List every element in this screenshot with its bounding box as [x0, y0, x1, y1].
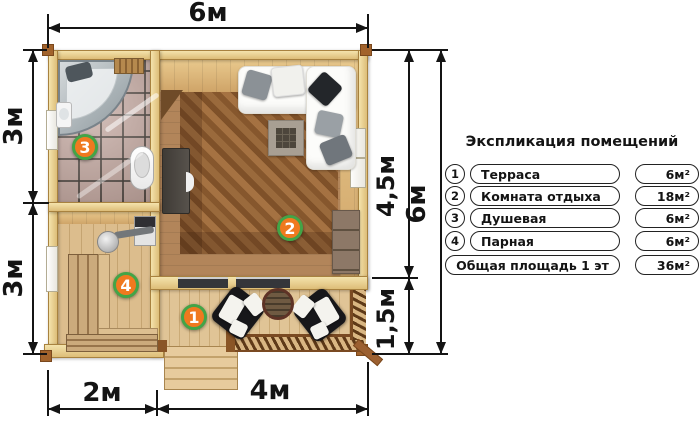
- step-post-left: [158, 340, 167, 352]
- dim-label-right-total: 6м: [404, 174, 430, 234]
- sofa-pillow: [271, 64, 306, 97]
- legend-room-name: Душевая: [470, 208, 620, 228]
- arrowhead: [28, 342, 38, 354]
- coffee-table-top: [276, 128, 296, 148]
- legend-room-name: Комната отдыха: [470, 186, 620, 206]
- terrace-railing-bottom: [230, 334, 364, 352]
- window-sauna: [46, 246, 58, 292]
- dim-label-bottom-right: 4м: [230, 378, 310, 404]
- legend-room-area: 6м²: [635, 208, 699, 228]
- arrowhead: [356, 23, 368, 33]
- corner-post-bottom-left: [40, 350, 52, 362]
- wall-shower-sauna: [48, 202, 160, 212]
- arrowhead: [48, 404, 60, 414]
- arrowhead: [436, 342, 446, 354]
- wall-shelf: [114, 58, 144, 74]
- room-badge-terrace: 1: [181, 304, 207, 330]
- terrace-door-threshold-left: [178, 277, 228, 288]
- legend-row-total: Общая площадь 1 эт 36м²: [445, 255, 699, 275]
- floor-plan-page: 1 2 3 4 6м 3м 3м 4,5м 1,5м 6м 2м 4м Эксп…: [0, 0, 700, 425]
- legend-total-label: Общая площадь 1 эт: [445, 255, 620, 275]
- dimension-line-right-outer: [440, 50, 442, 354]
- legend-room-area: 18м²: [635, 186, 699, 206]
- legend-room-name: Парная: [470, 231, 620, 251]
- terrace-steps: [164, 346, 238, 390]
- legend-room-number: 2: [445, 186, 465, 206]
- dim-label-right-lower: 1,5м: [373, 274, 399, 364]
- room-badge-lounge: 2: [277, 215, 303, 241]
- dim-label-right-upper: 4,5м: [373, 141, 399, 231]
- round-table: [262, 288, 294, 320]
- legend-title: Экспликация помещений: [445, 134, 699, 150]
- dimension-line-bottom: [48, 408, 368, 410]
- dim-label-top-width: 6м: [148, 0, 268, 26]
- legend-room-area: 6м²: [635, 164, 699, 184]
- parquet-shadow-bottom: [180, 232, 338, 254]
- terrace-door-threshold-right: [236, 277, 290, 288]
- dim-label-left-lower: 3м: [1, 248, 27, 308]
- arrowhead: [356, 404, 368, 414]
- arrowhead: [157, 404, 169, 414]
- sauna-bench-bottom: [66, 334, 158, 352]
- sauna-stove: [97, 231, 119, 253]
- sink-bowl: [59, 108, 69, 120]
- arrowhead: [436, 50, 446, 62]
- corner-post-top-right: [360, 44, 372, 56]
- arrowhead: [28, 203, 38, 215]
- legend-room-number: 1: [445, 164, 465, 184]
- sofa-pillow: [314, 110, 344, 139]
- arrowhead: [404, 278, 414, 290]
- legend-room-number: 4: [445, 231, 465, 251]
- legend-total-area: 36м²: [635, 255, 699, 275]
- legend-row: 1 Терраса 6м²: [445, 164, 699, 184]
- legend-row: 3 Душевая 6м²: [445, 208, 699, 228]
- arrowhead: [145, 404, 157, 414]
- arrowhead: [28, 191, 38, 203]
- dim-label-left-upper: 3м: [1, 96, 27, 156]
- arrowhead: [48, 23, 60, 33]
- arrowhead: [404, 266, 414, 278]
- arrowhead: [28, 50, 38, 62]
- legend-room-number: 3: [445, 208, 465, 228]
- arrowhead: [404, 50, 414, 62]
- legend-room-area: 6м²: [635, 231, 699, 251]
- legend-row: 2 Комната отдыха 18м²: [445, 186, 699, 206]
- room-badge-shower: 3: [72, 134, 98, 160]
- dim-label-bottom-left: 2м: [62, 380, 142, 406]
- legend-room-name: Терраса: [470, 164, 620, 184]
- arrowhead: [404, 342, 414, 354]
- room-badge-sauna: 4: [113, 272, 139, 298]
- legend-row: 4 Парная 6м²: [445, 231, 699, 251]
- wall-top: [48, 50, 368, 60]
- terrace-railing-right: [350, 290, 366, 340]
- legend: Экспликация помещений 1 Терраса 6м² 2 Ко…: [445, 130, 699, 282]
- dresser: [332, 210, 360, 274]
